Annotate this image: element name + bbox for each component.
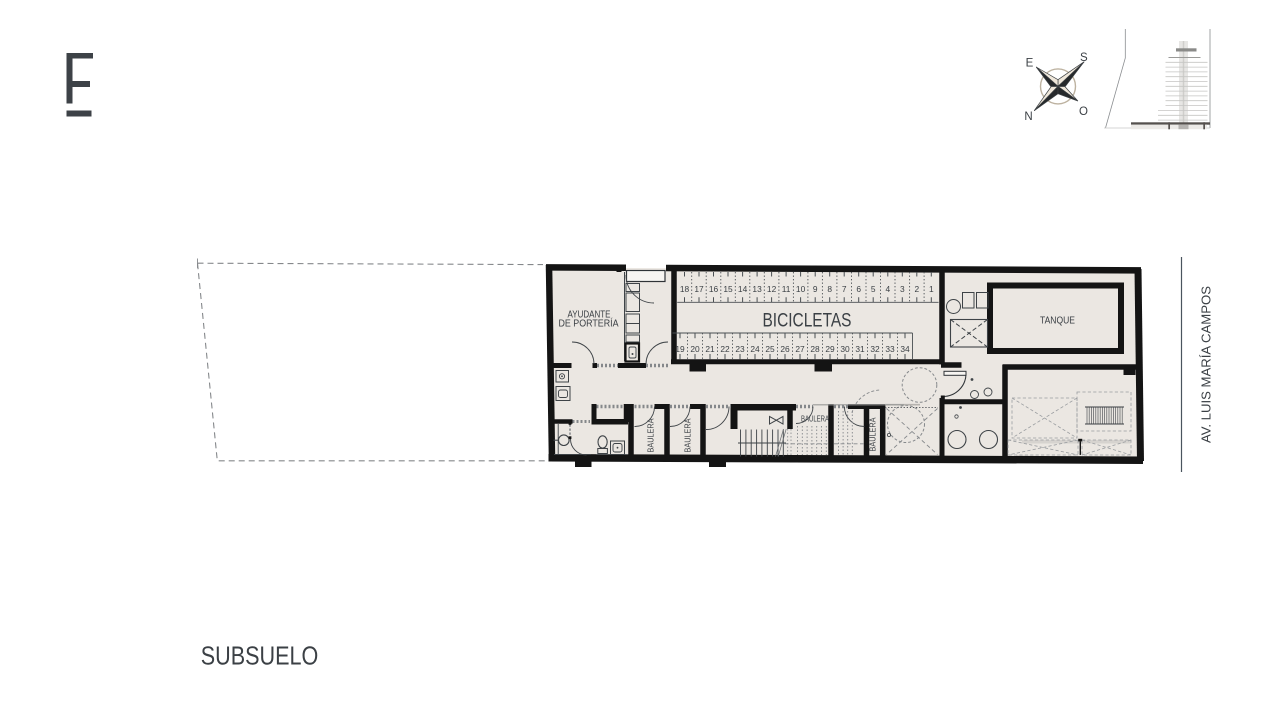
- svg-text:1: 1: [929, 284, 934, 294]
- svg-text:BICICLETAS: BICICLETAS: [763, 310, 852, 332]
- svg-text:12: 12: [767, 284, 777, 294]
- svg-text:27: 27: [795, 344, 805, 354]
- svg-text:AV. LUIS MARÍA CAMPOS: AV. LUIS MARÍA CAMPOS: [1199, 286, 1214, 443]
- svg-text:29: 29: [825, 344, 835, 354]
- svg-text:13: 13: [752, 284, 762, 294]
- svg-text:SUBSUELO: SUBSUELO: [201, 641, 318, 671]
- svg-text:33: 33: [885, 344, 895, 354]
- svg-text:24: 24: [750, 344, 760, 354]
- svg-text:7: 7: [842, 284, 847, 294]
- svg-text:22: 22: [720, 344, 730, 354]
- svg-text:16: 16: [709, 284, 719, 294]
- svg-text:5: 5: [871, 284, 876, 294]
- svg-text:6: 6: [856, 284, 861, 294]
- svg-text:O: O: [1079, 106, 1088, 118]
- svg-text:BAULERA: BAULERA: [646, 418, 656, 452]
- svg-text:26: 26: [780, 344, 790, 354]
- svg-text:N: N: [1024, 111, 1032, 123]
- svg-text:25: 25: [765, 344, 775, 354]
- svg-text:S: S: [1080, 52, 1088, 64]
- svg-text:10: 10: [796, 284, 806, 294]
- svg-text:BAULERA: BAULERA: [801, 414, 829, 424]
- svg-text:23: 23: [735, 344, 745, 354]
- svg-text:2: 2: [914, 284, 919, 294]
- svg-text:BAULERA: BAULERA: [683, 418, 693, 452]
- svg-text:8: 8: [827, 284, 832, 294]
- svg-text:15: 15: [723, 284, 733, 294]
- svg-text:3: 3: [900, 284, 905, 294]
- svg-text:11: 11: [782, 284, 791, 294]
- svg-text:14: 14: [738, 284, 748, 294]
- svg-text:17: 17: [694, 284, 704, 294]
- svg-text:21: 21: [705, 344, 715, 354]
- svg-text:34: 34: [900, 344, 910, 354]
- svg-text:DE PORTERÍA: DE PORTERÍA: [559, 317, 619, 330]
- svg-text:32: 32: [870, 344, 880, 354]
- svg-text:4: 4: [885, 284, 890, 294]
- svg-text:E: E: [1026, 58, 1034, 70]
- svg-text:30: 30: [840, 344, 850, 354]
- svg-text:20: 20: [690, 344, 700, 354]
- svg-text:BAULERA: BAULERA: [868, 417, 878, 451]
- svg-text:9: 9: [813, 284, 818, 294]
- svg-text:TANQUE: TANQUE: [1040, 316, 1075, 327]
- svg-text:28: 28: [810, 344, 820, 354]
- svg-text:31: 31: [855, 344, 865, 354]
- svg-text:18: 18: [680, 284, 690, 294]
- svg-text:19: 19: [675, 344, 685, 354]
